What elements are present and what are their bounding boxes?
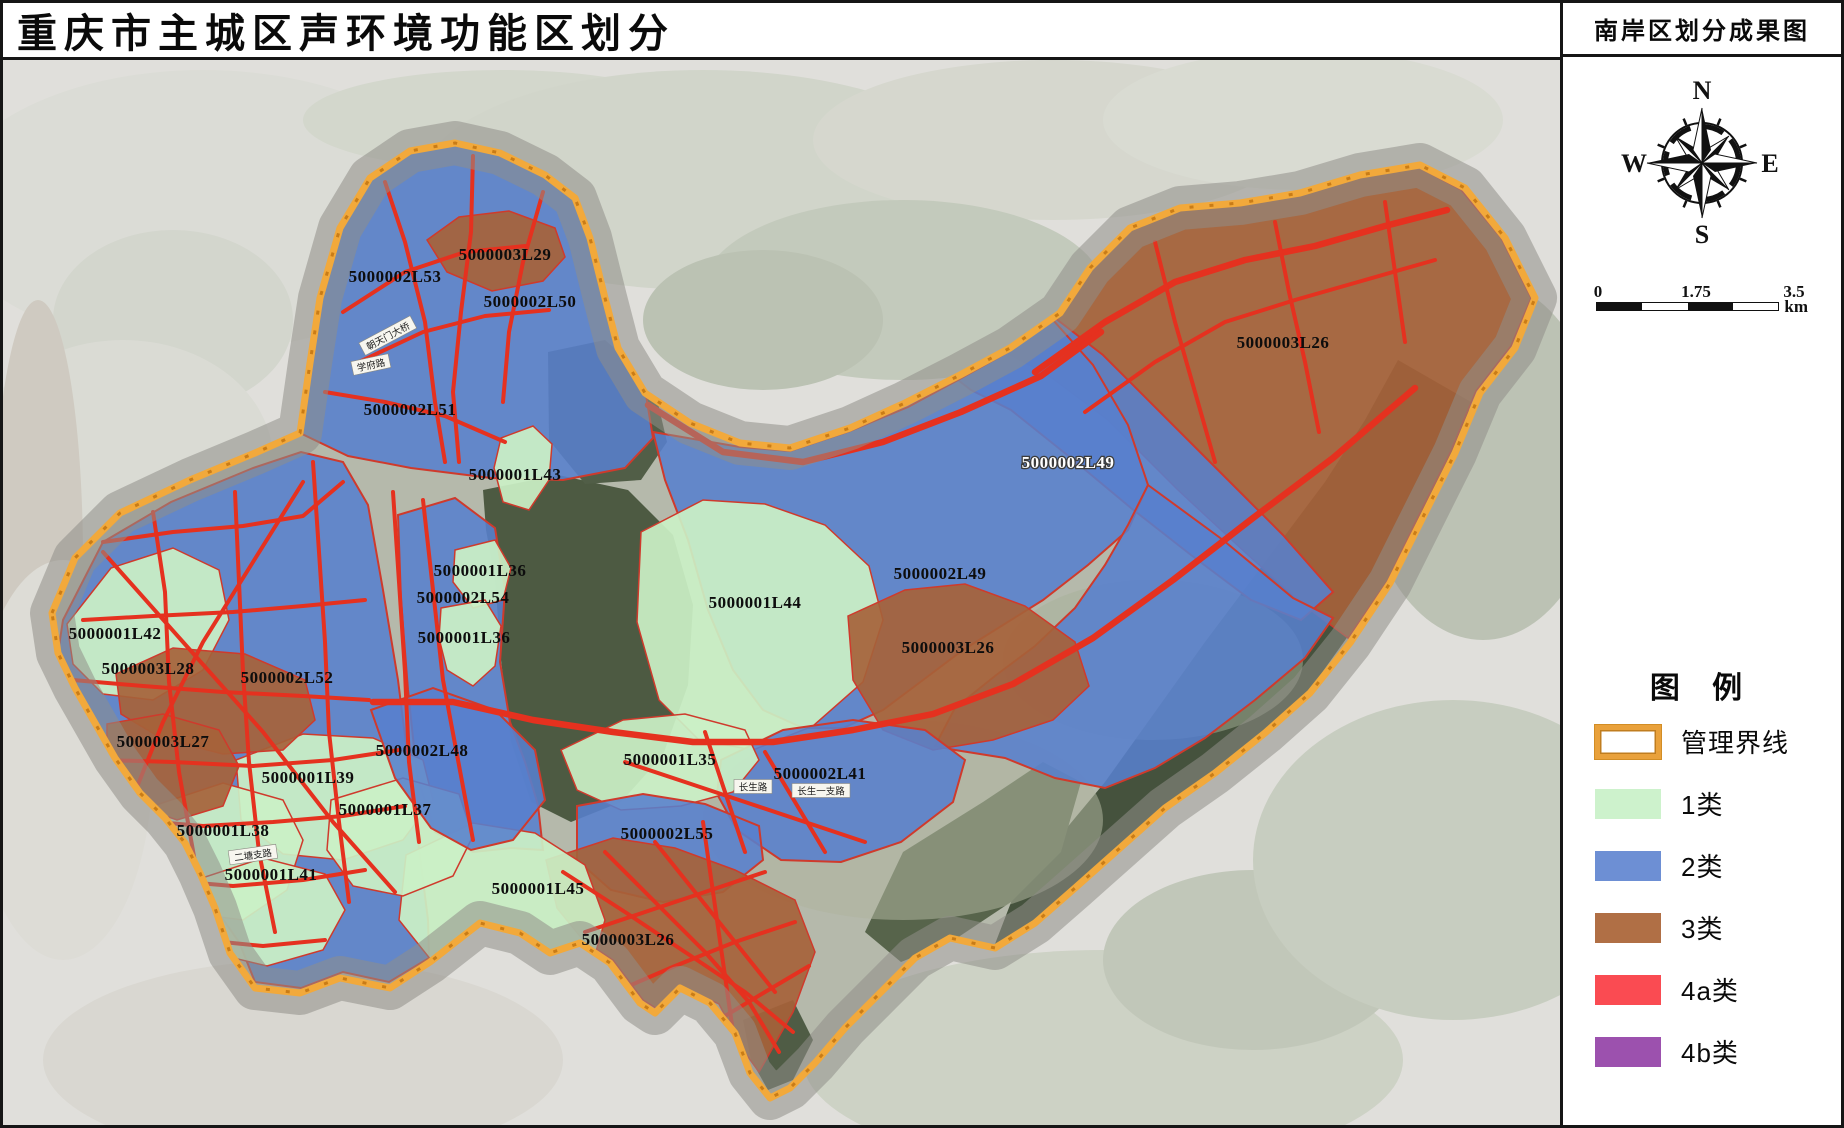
legend-label: 2类 xyxy=(1681,847,1723,884)
map-canvas: 朝天门大桥学府路二塘支路长生路长生一支路 5000003L295000002L5… xyxy=(3,60,1560,1125)
svg-text:长生路: 长生路 xyxy=(739,782,768,794)
legend-item: 2类 xyxy=(1595,847,1809,884)
zone-code-label: 5000002L48 xyxy=(376,741,469,760)
map-pane: 重庆市主城区声环境功能区划分 xyxy=(3,3,1563,1125)
legend-label: 4a类 xyxy=(1681,971,1739,1008)
zone-code-label: 5000003L27 xyxy=(117,732,210,751)
title-bar: 重庆市主城区声环境功能区划分 xyxy=(3,3,1560,60)
zone-code-label: 5000002L53 xyxy=(349,267,442,286)
side-panel: 南岸区划分成果图 xyxy=(1563,3,1841,1125)
zone-code-label: 5000001L38 xyxy=(177,821,270,840)
zone-code-label: 5000002L51 xyxy=(364,400,457,419)
zone-code-label: 5000001L37 xyxy=(339,800,432,819)
legend-heading: 图 例 xyxy=(1595,663,1809,707)
zone-code-label: 5000003L26 xyxy=(582,930,675,949)
legend-label: 1类 xyxy=(1681,785,1723,822)
zone-code-label: 5000001L42 xyxy=(69,624,162,643)
zone-code-label: 5000003L26 xyxy=(1237,333,1330,352)
legend: 图 例 管理界线 1类2类3类4a类4b类 xyxy=(1595,663,1809,1095)
scale-numbers: 0 1.75 3.5 xyxy=(1596,282,1808,302)
zone-code-label: 5000001L36 xyxy=(434,561,527,580)
zone-code-label: 5000001L35 xyxy=(624,750,717,769)
legend-boundary-row: 管理界线 xyxy=(1595,723,1809,760)
app-frame: 重庆市主城区声环境功能区划分 xyxy=(0,0,1844,1128)
boundary-swatch xyxy=(1595,725,1661,759)
zone-code-label: 5000002L54 xyxy=(417,588,510,607)
svg-text:长生一支路: 长生一支路 xyxy=(797,786,845,798)
scale-bar-segments xyxy=(1596,302,1779,311)
zone-code-label: 5000001L45 xyxy=(492,879,585,898)
zone-code-label: 5000002L52 xyxy=(241,668,334,687)
zone-code-label: 5000003L26 xyxy=(902,638,995,657)
zone-code-label: 5000001L36 xyxy=(418,628,511,647)
scale-unit: km xyxy=(1784,303,1808,310)
panel-title: 南岸区划分成果图 xyxy=(1563,3,1841,57)
legend-item: 3类 xyxy=(1595,909,1809,946)
legend-label: 4b类 xyxy=(1681,1033,1739,1070)
zone-code-label: 5000002L49 xyxy=(894,564,987,583)
legend-items: 1类2类3类4a类4b类 xyxy=(1595,785,1809,1070)
scale-bar: 0 1.75 3.5 km xyxy=(1596,282,1808,311)
scale-mid: 1.75 xyxy=(1681,282,1711,302)
legend-item: 4a类 xyxy=(1595,971,1809,1008)
boundary-label: 管理界线 xyxy=(1681,723,1789,760)
legend-swatch xyxy=(1595,975,1661,1005)
zone-code-label: 5000001L39 xyxy=(262,768,355,787)
zone-code-label: 5000002L41 xyxy=(774,764,867,783)
map-area: 朝天门大桥学府路二塘支路长生路长生一支路 5000003L295000002L5… xyxy=(3,60,1560,1125)
zone-code-label: 5000001L43 xyxy=(469,465,562,484)
road-name-label: 长生一支路 xyxy=(792,784,850,798)
compass-rose: N E S W xyxy=(1592,75,1812,262)
scale-start: 0 xyxy=(1594,282,1603,302)
page-title: 重庆市主城区声环境功能区划分 xyxy=(17,1,675,59)
zone-code-label: 5000003L28 xyxy=(102,659,195,678)
zone-code-label: 5000002L50 xyxy=(484,292,577,311)
legend-item: 1类 xyxy=(1595,785,1809,822)
compass-s-label: S xyxy=(1695,220,1709,249)
compass-star-cardinal xyxy=(1647,108,1757,218)
legend-swatch xyxy=(1595,913,1661,943)
legend-swatch xyxy=(1595,789,1661,819)
compass-w-label: W xyxy=(1621,149,1647,178)
zone-code-label: 5000002L55 xyxy=(621,824,714,843)
zone-code-label: 5000002L49 xyxy=(1022,453,1115,472)
zone-code-label: 5000001L44 xyxy=(709,593,802,612)
zone-code-label: 5000001L41 xyxy=(225,865,318,884)
legend-swatch xyxy=(1595,851,1661,881)
legend-label: 3类 xyxy=(1681,909,1723,946)
legend-item: 4b类 xyxy=(1595,1033,1809,1070)
legend-swatch xyxy=(1595,1037,1661,1067)
scale-end: 3.5 xyxy=(1783,282,1804,302)
zone-code-label: 5000003L29 xyxy=(459,245,552,264)
compass-n-label: N xyxy=(1693,76,1712,105)
compass-e-label: E xyxy=(1761,149,1778,178)
road-name-label: 长生路 xyxy=(734,780,772,794)
